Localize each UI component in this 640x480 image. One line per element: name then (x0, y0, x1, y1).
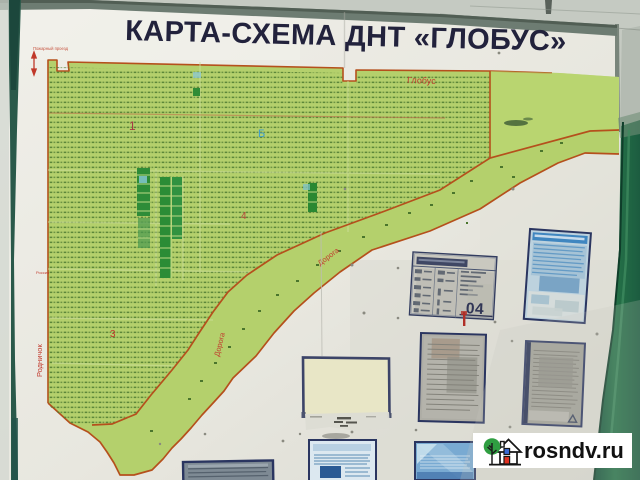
svg-text:Глобус: Глобус (407, 75, 436, 86)
svg-text:3: 3 (110, 329, 116, 340)
svg-text:Пожарный проезд: Пожарный проезд (33, 46, 69, 51)
svg-text:rosndv.ru: rosndv.ru (524, 438, 624, 463)
svg-text:Б: Б (258, 128, 265, 140)
svg-text:Родничок: Родничок (35, 344, 44, 377)
svg-text:Россия: Россия (36, 270, 49, 275)
svg-text:1: 1 (129, 119, 136, 133)
svg-text:4: 4 (241, 211, 247, 222)
